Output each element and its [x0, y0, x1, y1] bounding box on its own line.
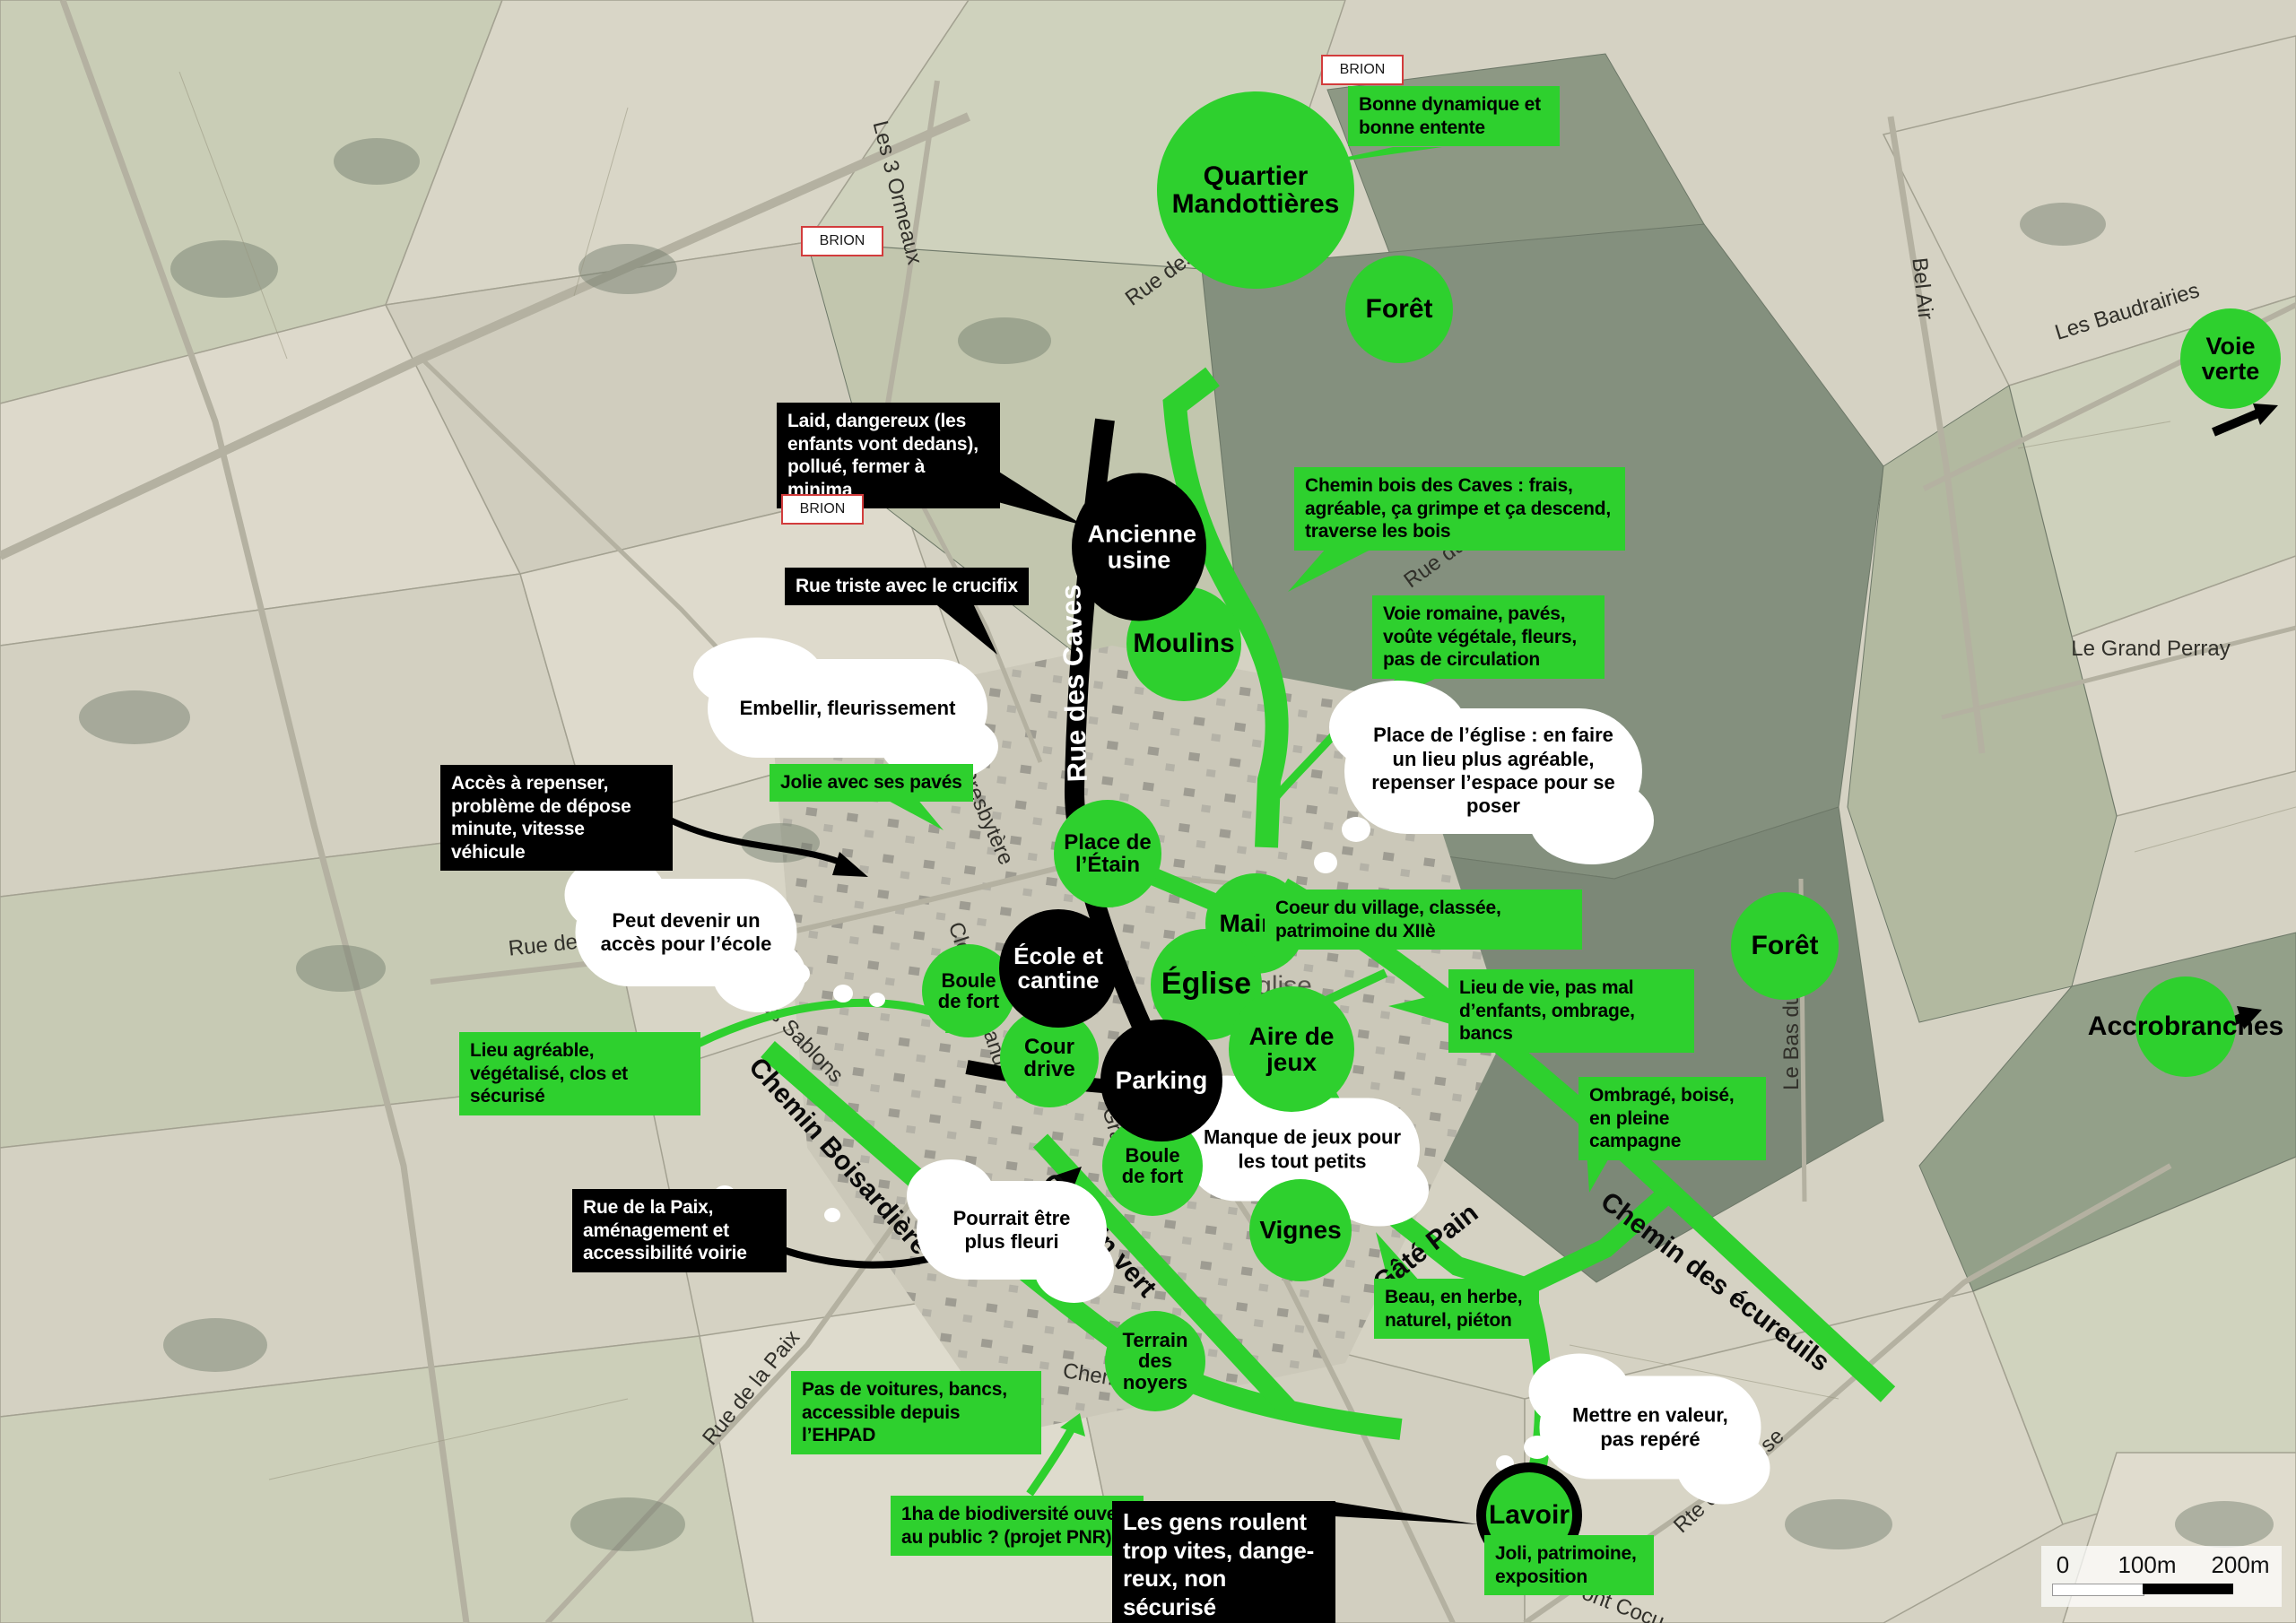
- place-label: Terrain des noyers: [1109, 1330, 1203, 1392]
- cloud-text: Manque de jeux pour les tout petits: [1199, 1126, 1405, 1174]
- place-accrobranches: Accrobranches: [2135, 976, 2236, 1077]
- scale-tick-0: 0: [2057, 1551, 2069, 1579]
- place-label: Place de l’Étain: [1061, 831, 1155, 876]
- note-beau-en-herbe: Beau, en herbe, naturel, piéton: [1374, 1279, 1539, 1339]
- cloud-dot: [869, 993, 885, 1007]
- note-lieu-de-vie: Lieu de vie, pas mal d’enfants, ombrage,…: [1448, 969, 1694, 1053]
- place-vignes: Vignes: [1249, 1179, 1352, 1281]
- place-label: Voie verte: [2195, 334, 2266, 385]
- place-label: Moulins: [1133, 629, 1234, 658]
- place-label: Lavoir: [1489, 1501, 1570, 1530]
- place-foret-nord: Forêt: [1345, 256, 1453, 363]
- annotation-layer: Embellir, fleurissement Peut devenir un …: [0, 0, 2296, 1623]
- note-laid-dangereux: Laid, dangereux (les enfants vont dedans…: [777, 403, 1000, 508]
- cloud-text: Place de l’église : en faire un lieu plu…: [1359, 724, 1628, 819]
- note-biodiversite: 1ha de biodiversité ouvert au public ? (…: [891, 1496, 1144, 1556]
- note-pas-de-voitures: Pas de voitures, bancs, accessible depui…: [791, 1371, 1041, 1454]
- note-voie-romaine: Voie romaine, pavés, voûte végétale, fle…: [1372, 595, 1605, 679]
- cloud-dot: [833, 985, 853, 1002]
- cloud-pourrait-fleuri: Pourrait être plus fleuri: [917, 1181, 1107, 1280]
- cloud-text: Embellir, fleurissement: [740, 697, 956, 720]
- place-label: Boule de fort: [1112, 1145, 1193, 1186]
- place-ancienne-usine: Ancienne usine: [1072, 473, 1206, 621]
- brion-tag: BRION: [801, 226, 883, 256]
- note-joli-patrimoine: Joli, patrimoine, exposition: [1484, 1535, 1654, 1595]
- note-coeur-du-village: Coeur du village, classée, patrimoine du…: [1265, 890, 1582, 950]
- place-label: Boule de fort: [931, 970, 1007, 1011]
- place-label: Vignes: [1259, 1217, 1341, 1243]
- note-les-gens-roulent: Les gens roulent trop vites, dange-reux,…: [1112, 1501, 1335, 1623]
- scale-tick-200: 200m: [2211, 1551, 2269, 1579]
- scale-bar: 0 100m 200m: [2041, 1546, 2282, 1607]
- cloud-text: Mettre en valeur, pas repéré: [1554, 1404, 1747, 1452]
- note-ombrage-boise: Ombragé, boisé, en pleine campagne: [1578, 1077, 1766, 1160]
- cloud-dot: [1342, 817, 1370, 842]
- place-parking: Parking: [1100, 1020, 1222, 1141]
- cloud-embellir: Embellir, fleurissement: [708, 659, 987, 758]
- place-quartier-mandottieres: Quartier Mandottières: [1157, 91, 1354, 289]
- cloud-dot: [1314, 852, 1337, 873]
- place-label: Cour drive: [1013, 1036, 1085, 1081]
- note-chemin-bois-des-caves: Chemin bois des Caves : frais, agréable,…: [1294, 467, 1625, 551]
- place-aire-de-jeux: Aire de jeux: [1229, 986, 1354, 1112]
- place-label: École et cantine: [1012, 944, 1106, 994]
- place-label: Église: [1161, 968, 1251, 1001]
- annotated-aerial-map: Les 3 Ormeaux Rue des M Bel Air Les Baud…: [0, 0, 2296, 1623]
- note-bonne-dynamique: Bonne dynamique et bonne entente: [1348, 86, 1560, 146]
- place-terrain-des-noyers: Terrain des noyers: [1105, 1311, 1205, 1411]
- brion-tag: BRION: [1321, 55, 1404, 85]
- place-ecole-et-cantine: École et cantine: [999, 909, 1118, 1028]
- brion-tag: BRION: [781, 494, 864, 525]
- cloud-dot: [824, 1208, 840, 1222]
- cloud-place-eglise: Place de l’église : en faire un lieu plu…: [1344, 708, 1642, 834]
- place-label: Accrobranches: [2088, 1012, 2283, 1041]
- cloud-peut-devenir: Peut devenir un accès pour l’école: [576, 879, 797, 986]
- note-acces-a-repenser: Accès à repenser, problème de dépose min…: [440, 765, 673, 871]
- cloud-text: Pourrait être plus fleuri: [931, 1207, 1092, 1254]
- place-label: Parking: [1116, 1067, 1208, 1093]
- note-jolie-paves: Jolie avec ses pavés: [770, 764, 973, 802]
- place-foret-est: Forêt: [1731, 892, 1839, 1000]
- note-rue-de-la-paix: Rue de la Paix, aménagement et accessibi…: [572, 1189, 787, 1272]
- scale-segment-black: [2143, 1584, 2233, 1594]
- cloud-text: Peut devenir un accès pour l’école: [590, 909, 783, 957]
- place-place-de-l-etain: Place de l’Étain: [1054, 800, 1161, 907]
- place-label: Forêt: [1366, 295, 1433, 324]
- scale-segment-white: [2052, 1584, 2144, 1596]
- scale-tick-100: 100m: [2118, 1551, 2176, 1579]
- cloud-mettre-valeur: Mettre en valeur, pas repéré: [1540, 1376, 1761, 1480]
- note-lieu-agreable: Lieu agréable, végétalisé, clos et sécur…: [459, 1032, 700, 1115]
- place-label: Aire de jeux: [1242, 1023, 1341, 1076]
- place-label: Ancienne usine: [1088, 522, 1191, 573]
- note-rue-triste: Rue triste avec le crucifix: [785, 568, 1029, 605]
- place-label: Quartier Mandottières: [1157, 162, 1354, 219]
- place-voie-verte: Voie verte: [2180, 308, 2281, 409]
- place-label: Forêt: [1752, 932, 1819, 960]
